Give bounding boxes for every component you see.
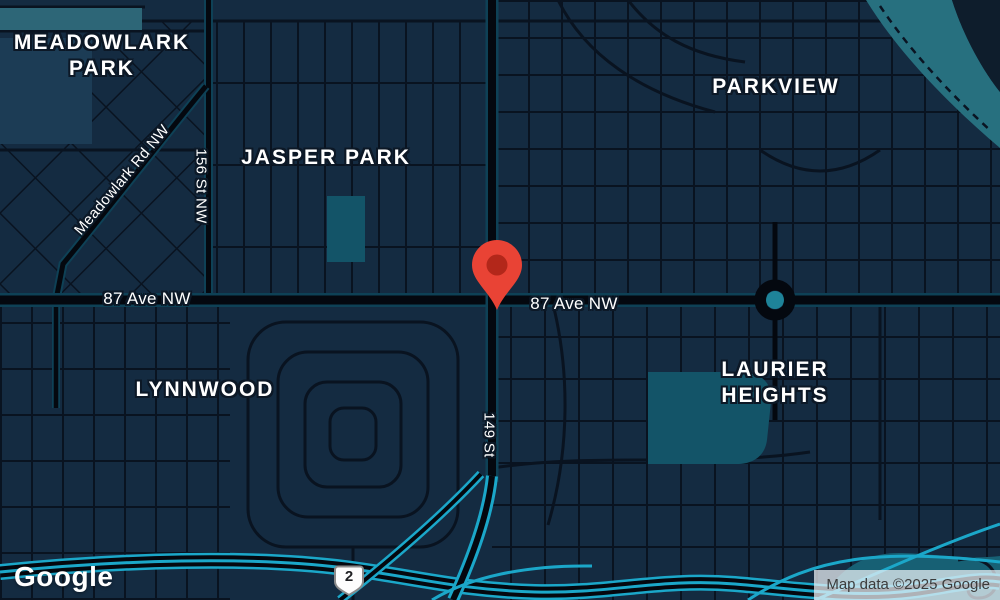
neighborhood-label-laurier-heights: LAURIER HEIGHTS bbox=[721, 357, 828, 409]
road-label-87-ave-west: 87 Ave NW bbox=[103, 289, 190, 309]
neighborhood-label-meadowlark-park: MEADOWLARK PARK bbox=[14, 30, 190, 82]
neighborhood-label-lynnwood: LYNNWOOD bbox=[136, 377, 275, 403]
roundabout-icon bbox=[760, 285, 790, 315]
google-logo[interactable]: Google bbox=[14, 561, 113, 593]
neighborhood-label-parkview: PARKVIEW bbox=[712, 74, 840, 100]
highway-shield-number: 2 bbox=[334, 568, 364, 585]
road-label-149-st: 149 St bbox=[481, 412, 498, 457]
map-attribution: Map data ©2025 Google bbox=[814, 570, 1000, 600]
label-line: LAURIER bbox=[721, 357, 828, 383]
neighborhood-label-jasper-park: JASPER PARK bbox=[241, 145, 411, 171]
highway-shield-icon: 2 bbox=[334, 565, 364, 596]
road-label-87-ave-east: 87 Ave NW bbox=[530, 294, 617, 314]
label-line: MEADOWLARK bbox=[14, 30, 190, 56]
label-line: JASPER PARK bbox=[241, 145, 411, 171]
label-line: PARK bbox=[14, 56, 190, 82]
map-viewport[interactable]: MEADOWLARK PARK JASPER PARK PARKVIEW LYN… bbox=[0, 0, 1000, 600]
label-line: HEIGHTS bbox=[721, 383, 828, 409]
label-line: PARKVIEW bbox=[712, 74, 840, 100]
label-line: LYNNWOOD bbox=[136, 377, 275, 403]
location-pin-icon[interactable] bbox=[469, 238, 525, 312]
road-label-156-st: 156 St NW bbox=[193, 148, 210, 223]
